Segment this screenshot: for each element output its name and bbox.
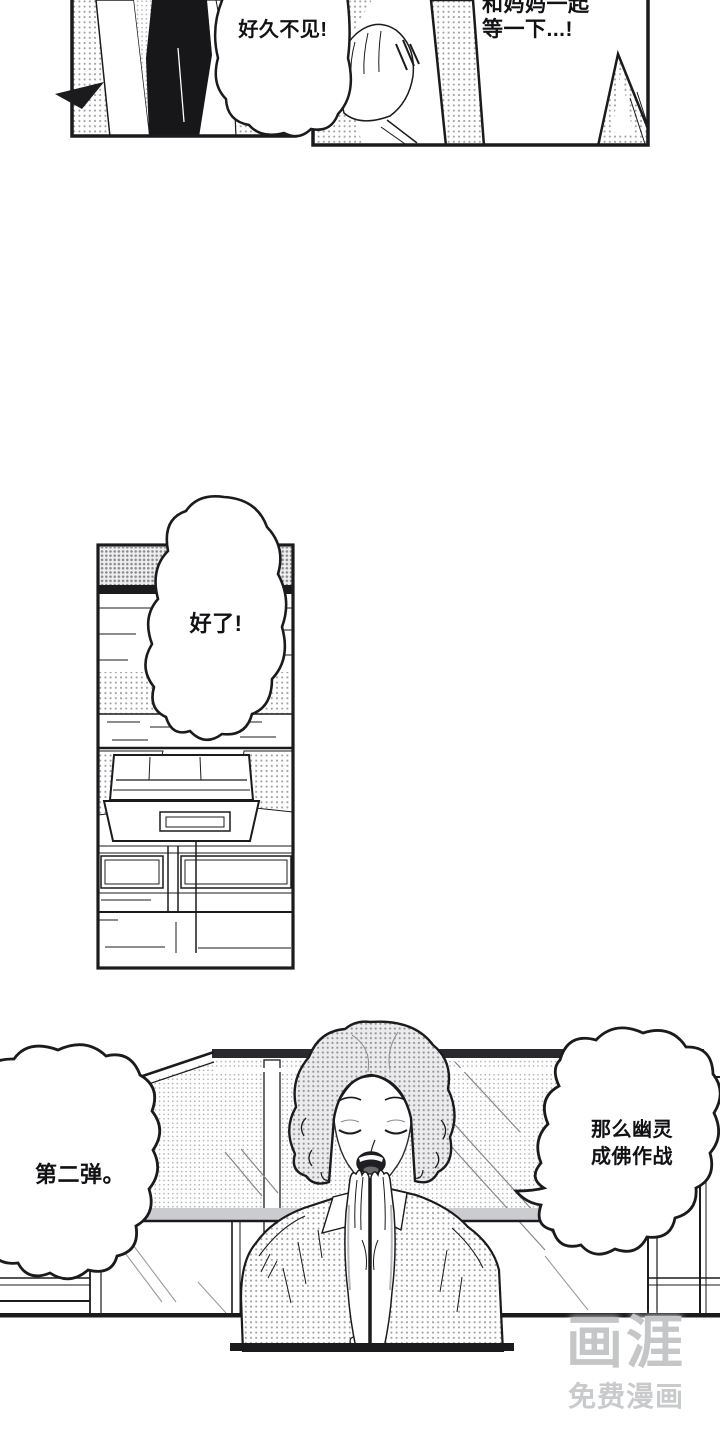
- speech-text-bottom-right: 那么幽灵 成佛作战: [556, 1117, 708, 1171]
- speech-line: 那么幽灵: [556, 1117, 708, 1144]
- speech-line: 和妈妈一起: [482, 0, 642, 17]
- panel-middle: [98, 496, 293, 968]
- huaya-logo: 画涯: [556, 1314, 696, 1372]
- speech-line: 等一下...!: [482, 17, 642, 42]
- speech-text-middle: 好了!: [160, 606, 272, 638]
- speech-line: 成佛作战: [556, 1144, 708, 1171]
- comic-artwork: [0, 0, 720, 1440]
- praying-hands: [345, 1170, 395, 1348]
- comic-page[interactable]: 好久不见! 和妈妈一起 等一下...! 好了! 第二弹。 那么幽灵 成佛作战 画…: [0, 0, 720, 1440]
- watermark-tagline: 免费漫画: [556, 1375, 696, 1415]
- watermark: 画涯 免费漫画: [556, 1314, 696, 1415]
- speech-text-top-right: 和妈妈一起 等一下...!: [482, 0, 642, 42]
- speech-text-top-left: 好久不见!: [221, 13, 345, 42]
- speech-text-bottom-left: 第二弹。: [18, 1157, 142, 1189]
- necktie: [146, 0, 212, 137]
